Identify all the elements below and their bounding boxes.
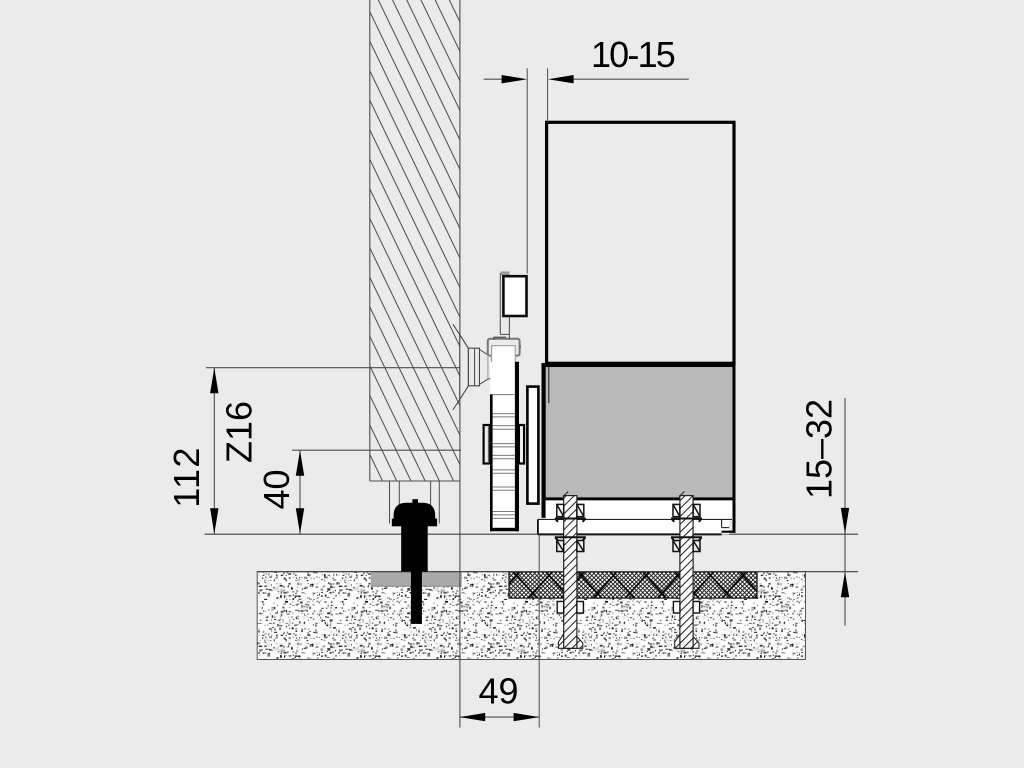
- svg-text:10-15: 10-15: [591, 34, 675, 75]
- svg-text:49: 49: [478, 671, 518, 712]
- svg-text:40: 40: [256, 469, 297, 509]
- svg-text:112: 112: [166, 446, 207, 508]
- svg-text:15–32: 15–32: [799, 399, 840, 499]
- svg-text:Z16: Z16: [219, 401, 260, 463]
